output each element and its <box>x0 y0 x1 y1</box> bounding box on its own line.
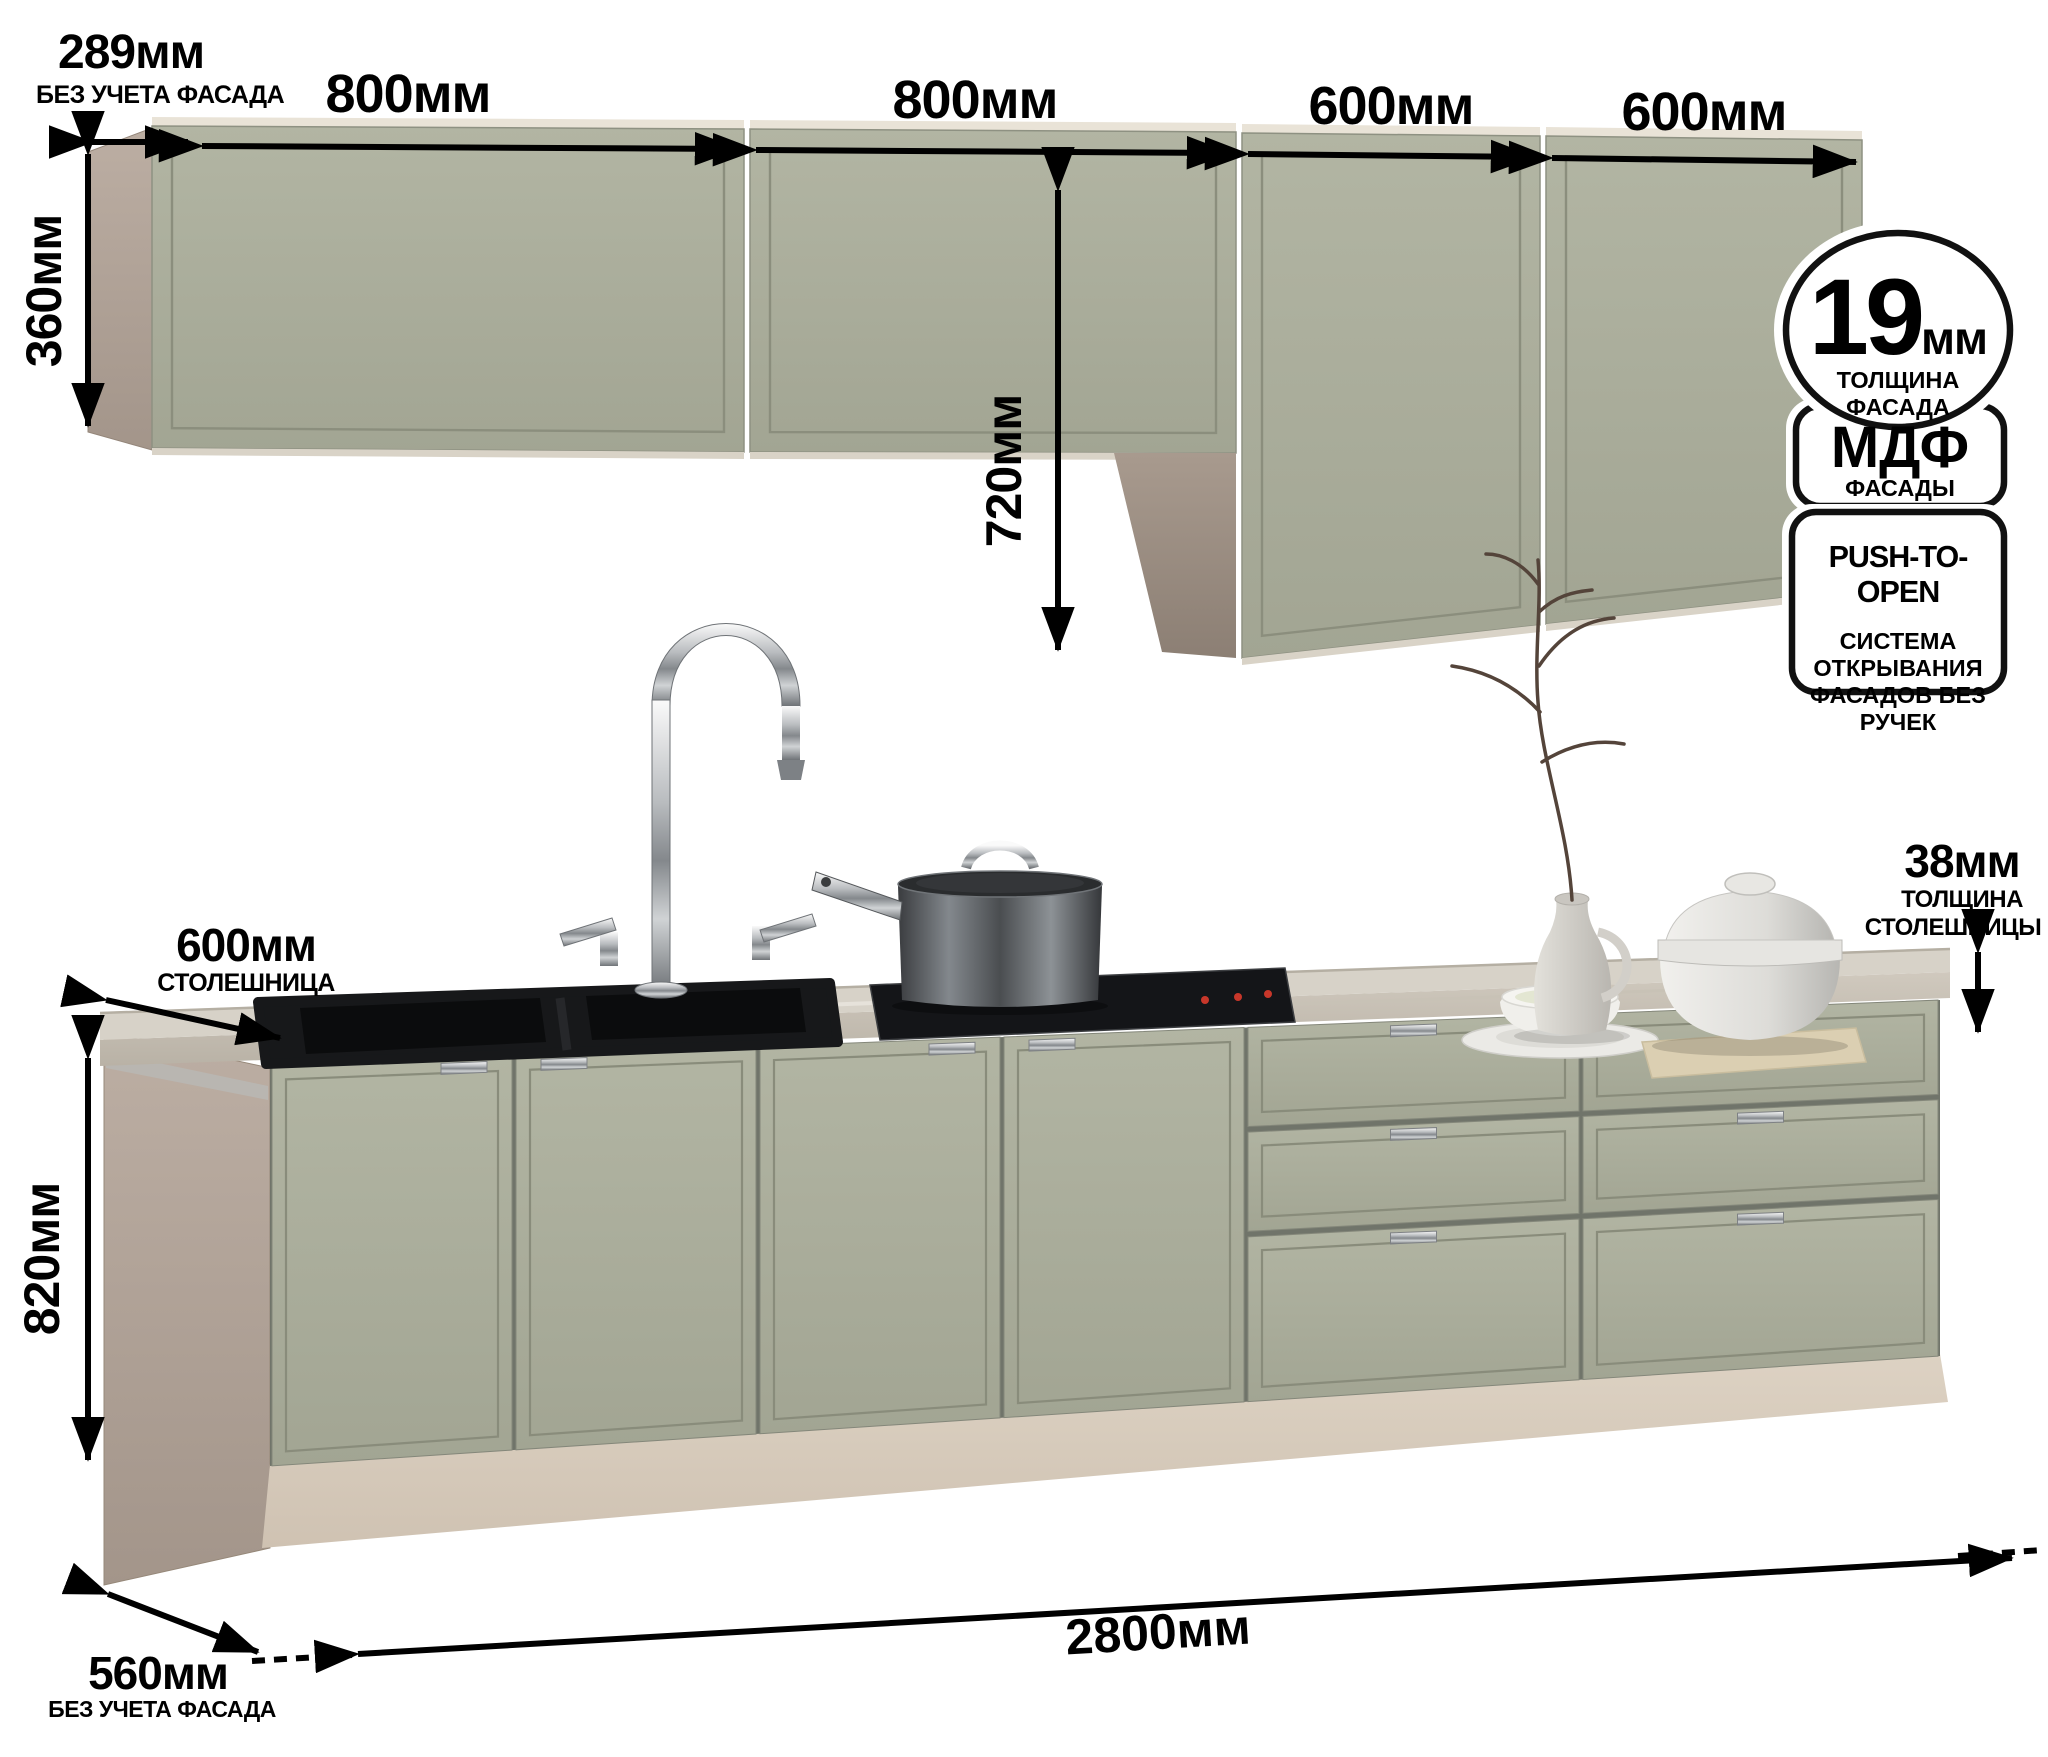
casserole-rim <box>1658 940 1842 966</box>
base-door-3 <box>760 1037 1000 1434</box>
faucet-handle-left-base <box>600 932 618 966</box>
arrow-560 <box>108 1594 258 1652</box>
badge-push-line-4: РУЧЕК <box>1792 709 2004 736</box>
base-door-1-handle <box>441 1062 487 1075</box>
drawer-stack-2-drawer-3 <box>1583 1199 1938 1379</box>
badge-push-line-1: СИСТЕМА <box>1792 628 2004 655</box>
dim-tall-cab-2: 600мм <box>1594 84 1814 140</box>
dim-tall-height: 720мм <box>978 321 1030 621</box>
dim-countertop-thickness: 38мм <box>1872 838 2048 886</box>
drawer-stack-2-drawer-2-handle <box>1738 1111 1784 1124</box>
saucepan-body <box>898 886 1102 1007</box>
badge-push-line-2: ОТКРЫВАНИЯ <box>1792 655 2004 682</box>
badge-material-title: МДФ <box>1796 420 2004 475</box>
drawer-stack-1-drawer-3-handle <box>1391 1231 1437 1244</box>
faucet-spout-arc <box>652 624 800 707</box>
drawer-stack-1-drawer-1-handle <box>1391 1024 1437 1037</box>
badge-push-line-3: ФАСАДОВ БЕЗ <box>1792 682 2004 709</box>
base-door-4-handle <box>1029 1038 1075 1051</box>
wall-side-panel <box>88 128 152 450</box>
badge-push-to-open: PUSH-TO-OPEN СИСТЕМА ОТКРЫВАНИЯ ФАСАДОВ … <box>1792 540 2004 736</box>
badge-facade-thickness-value: 19 <box>1809 256 1921 377</box>
sink-bowl-right <box>586 988 806 1040</box>
base-side-panel <box>104 1032 270 1585</box>
cooktop-indicator-2 <box>1234 993 1242 1001</box>
arrow-600-1 <box>1248 154 1534 157</box>
dim-countertop-depth-note: СТОЛЕШНИЦА <box>126 970 366 996</box>
dim-wall-height: 360мм <box>18 141 70 441</box>
product-diagram-kitchen-set: 289мм БЕЗ УЧЕТА ФАСАДА 800мм 800мм 600мм… <box>0 0 2048 1757</box>
base-door-2-handle <box>541 1058 587 1071</box>
dim-countertop-thickness-note2: СТОЛЕШНИЦЫ <box>1850 916 2048 941</box>
tall-cabinet-side-panel <box>1114 453 1236 658</box>
tall-cabinet-1 <box>1242 133 1540 658</box>
saucepan-lid <box>916 873 1084 893</box>
casserole-lid <box>1666 891 1834 940</box>
badge-facade-thickness: 19мм ТОЛЩИНА ФАСАДА <box>1788 268 2008 421</box>
kitchen-render-scene <box>0 0 2048 1757</box>
base-door-2 <box>516 1047 756 1450</box>
badge-push-title: PUSH-TO-OPEN <box>1792 540 2004 610</box>
faucet-nozzle <box>777 760 805 780</box>
saucepan-handle-hole <box>821 877 831 887</box>
faucet-handle-right-lever <box>760 914 816 942</box>
vase-body <box>1534 900 1611 1035</box>
saucepan-lid-handle <box>966 846 1034 869</box>
faucet-spout-drop <box>782 706 800 760</box>
base-door-1 <box>272 1056 512 1465</box>
dim-countertop-depth: 600мм <box>156 922 336 970</box>
arrow-2800-dash-right <box>1958 1550 2042 1556</box>
casserole-lid-knob <box>1725 873 1775 895</box>
branch-stem-2 <box>1452 666 1540 712</box>
badge-material: МДФ ФАСАДЫ <box>1796 420 2004 502</box>
arrow-800-2 <box>756 150 1230 153</box>
dim-countertop-thickness-note1: ТОЛЩИНА <box>1862 888 2048 913</box>
cooktop-indicator-1 <box>1201 996 1209 1004</box>
dim-289-note: БЕЗ УЧЕТА ФАСАДА <box>36 82 284 108</box>
dim-base-depth-note: БЕЗ УЧЕТА ФАСАДА <box>42 1698 282 1722</box>
dim-tall-cab-1: 600мм <box>1281 78 1501 134</box>
base-door-3-handle <box>929 1042 975 1055</box>
faucet-column <box>652 700 670 992</box>
dim-289: 289мм <box>58 28 204 78</box>
cooktop-indicator-3 <box>1264 990 1272 998</box>
drawer-stack-2-drawer-3-handle <box>1738 1212 1784 1225</box>
arrow-600-2 <box>1552 158 1856 162</box>
drawer-stack-1-drawer-2-handle <box>1391 1128 1437 1141</box>
branch-stem-4 <box>1542 742 1624 762</box>
arrow-2800-dash-left <box>252 1655 352 1661</box>
dim-wall-cab-1: 800мм <box>298 66 518 122</box>
dim-wall-cab-2: 800мм <box>865 72 1085 128</box>
wall-cabinet-1 <box>152 126 744 452</box>
base-door-4 <box>1004 1028 1244 1418</box>
badge-facade-thickness-unit: мм <box>1921 312 1987 364</box>
dim-base-height: 820мм <box>16 1109 68 1409</box>
faucet-base <box>635 982 687 998</box>
badge-material-subtitle: ФАСАДЫ <box>1796 475 2004 502</box>
dim-base-depth: 560мм <box>58 1650 258 1698</box>
drawer-stack-1-drawer-3 <box>1248 1219 1579 1402</box>
arrow-800-1 <box>202 146 738 149</box>
